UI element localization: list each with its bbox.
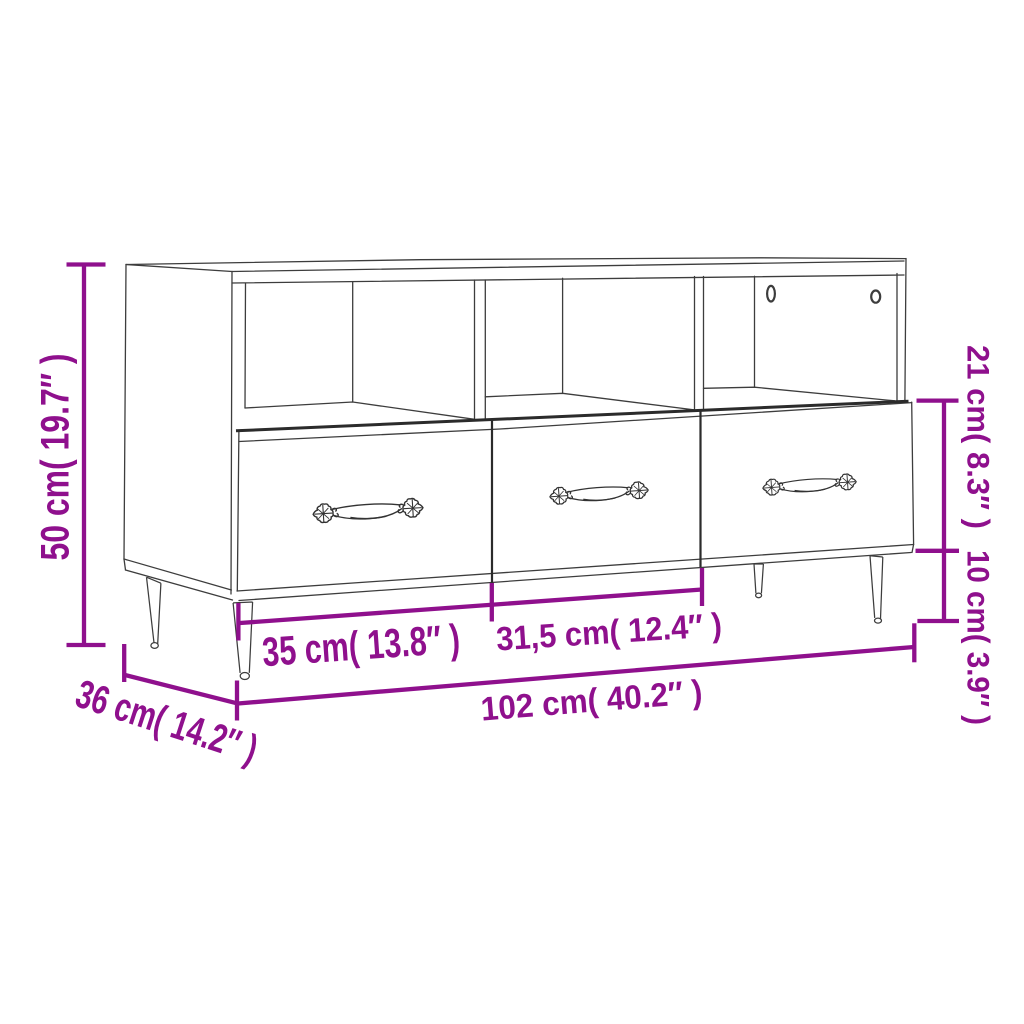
svg-text:21 cm( 8.3″ ): 21 cm( 8.3″ ) <box>960 345 996 529</box>
svg-text:10 cm( 3.9″ ): 10 cm( 3.9″ ) <box>960 550 996 725</box>
svg-text:50 cm( 19.7″ ): 50 cm( 19.7″ ) <box>34 354 78 561</box>
